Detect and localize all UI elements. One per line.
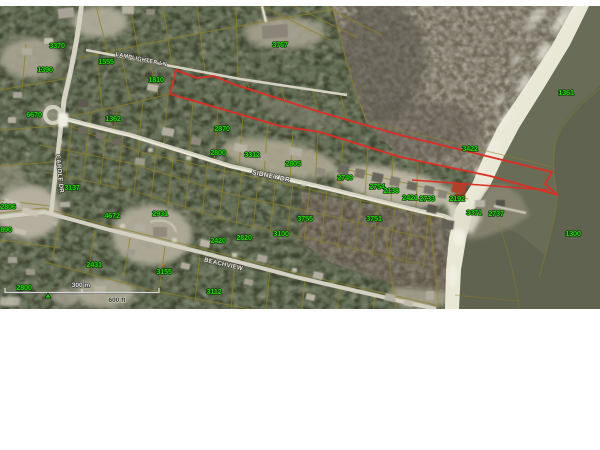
svg-text:3100: 3100 bbox=[273, 229, 289, 238]
svg-text:3137: 3137 bbox=[64, 183, 80, 192]
svg-text:4672: 4672 bbox=[104, 211, 120, 220]
svg-text:2431: 2431 bbox=[86, 260, 102, 269]
svg-text:2805: 2805 bbox=[285, 159, 301, 168]
svg-text:1361: 1361 bbox=[558, 88, 574, 97]
svg-text:2733: 2733 bbox=[419, 194, 435, 203]
svg-text:3312: 3312 bbox=[244, 150, 260, 159]
svg-text:3155: 3155 bbox=[156, 267, 172, 276]
svg-text:3751: 3751 bbox=[366, 214, 382, 223]
svg-text:3755: 3755 bbox=[297, 214, 313, 223]
svg-text:2870: 2870 bbox=[214, 124, 230, 133]
svg-text:2192: 2192 bbox=[449, 194, 465, 203]
svg-text:3370: 3370 bbox=[49, 41, 65, 50]
svg-text:1555: 1555 bbox=[98, 57, 114, 66]
svg-text:2806: 2806 bbox=[0, 202, 16, 211]
svg-text:3112: 3112 bbox=[206, 287, 221, 296]
svg-text:3422: 3422 bbox=[462, 144, 478, 153]
svg-text:2800: 2800 bbox=[16, 283, 32, 292]
svg-text:600 ft: 600 ft bbox=[109, 297, 127, 304]
svg-text:1810: 1810 bbox=[148, 75, 164, 84]
svg-text:6670: 6670 bbox=[26, 110, 42, 119]
svg-text:1362: 1362 bbox=[105, 114, 121, 123]
svg-text:2421: 2421 bbox=[402, 193, 418, 202]
svg-text:3371: 3371 bbox=[466, 208, 482, 217]
svg-text:2138: 2138 bbox=[383, 186, 399, 195]
svg-text:2820: 2820 bbox=[236, 233, 252, 242]
svg-text:300 m: 300 m bbox=[72, 282, 91, 289]
svg-text:3767: 3767 bbox=[272, 40, 288, 49]
svg-text:2420: 2420 bbox=[210, 236, 226, 245]
svg-text:2749: 2749 bbox=[337, 173, 353, 182]
svg-text:1300: 1300 bbox=[565, 229, 581, 238]
svg-text:2800: 2800 bbox=[210, 148, 226, 157]
svg-text:2931: 2931 bbox=[152, 209, 168, 218]
svg-text:1390: 1390 bbox=[37, 65, 53, 74]
svg-text:890: 890 bbox=[0, 225, 12, 234]
svg-text:2737: 2737 bbox=[488, 209, 504, 218]
